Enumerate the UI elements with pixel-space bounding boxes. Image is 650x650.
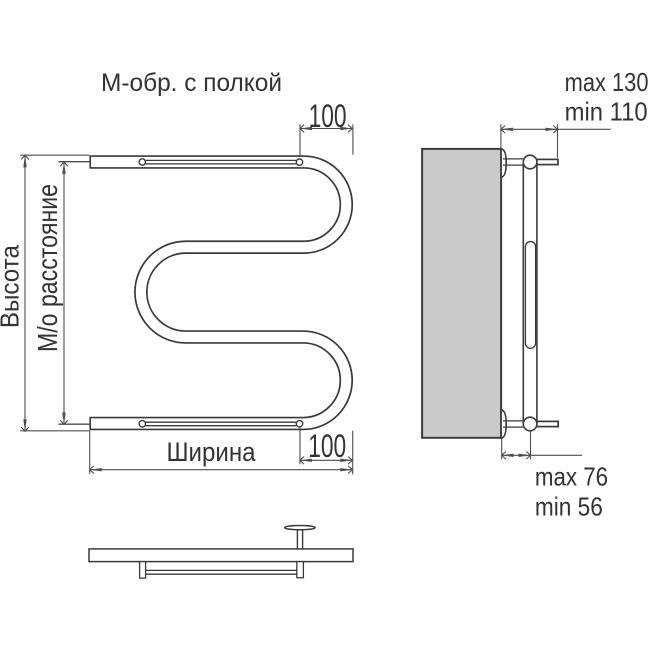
- svg-text:М/о расстояние: М/о расстояние: [32, 184, 63, 352]
- svg-text:Ширина: Ширина: [167, 437, 257, 467]
- svg-text:100: 100: [308, 428, 346, 464]
- svg-text:min 110: min 110: [565, 97, 648, 127]
- svg-text:max 130: max 130: [565, 67, 649, 97]
- svg-text:М-обр. с полкой: М-обр. с полкой: [101, 69, 282, 97]
- svg-text:max 76: max 76: [535, 461, 608, 491]
- svg-text:min 56: min 56: [535, 491, 603, 521]
- svg-text:Высота: Высота: [0, 245, 25, 328]
- svg-text:100: 100: [309, 98, 347, 134]
